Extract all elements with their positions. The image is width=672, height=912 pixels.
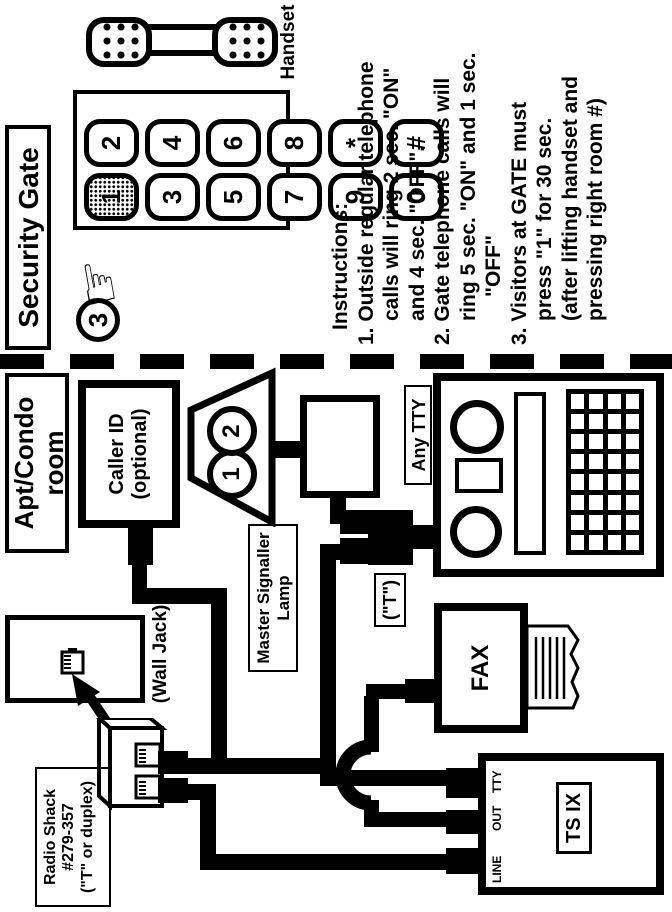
tsix-box: LINE OUT TTY TS IX: [478, 753, 664, 895]
tsix-tty-plug: [446, 768, 480, 798]
bell-circle-2: 2: [207, 406, 257, 456]
keypad-key-1: 1: [84, 173, 139, 221]
tty-display-bar: [514, 392, 546, 555]
tsix-out-plug: [446, 810, 480, 834]
any-tty-label: Any TTY: [404, 385, 432, 485]
room-section-title: Apt/Condo room: [5, 373, 69, 553]
radio-shack-line1: Radio Shack: [42, 769, 60, 905]
tsix-port-line-label: LINE: [490, 856, 504, 883]
fax-line-plug: [405, 679, 437, 703]
gate-keypad: 1 2 3 4 5 6 7 8 9 * 0 #: [73, 90, 290, 230]
keypad-key-5: 5: [206, 173, 261, 221]
tty-acoustic-cup-left: [450, 506, 502, 558]
instruction-line: and 4 sec. "OFF".: [405, 0, 431, 345]
duplex-plug-1: [158, 751, 188, 774]
instruction-line: (after lifting handset and: [558, 0, 584, 345]
instruction-line: 3. Visitors at GATE must: [507, 0, 533, 345]
fax-label: FAX: [467, 645, 495, 692]
t-adapter-label: ("T"): [374, 573, 406, 627]
handset-earpiece-top: [86, 17, 152, 67]
tsix-model-plate: TS IX: [556, 782, 592, 854]
handset-mouthpiece-holes: [227, 21, 267, 61]
room-title-line2: room: [40, 377, 70, 549]
caller-id-plug: [128, 528, 153, 565]
keypad-key-7: 7: [267, 173, 322, 221]
cable-hop-arc: [330, 727, 390, 817]
caller-id-box: Caller ID (optional): [78, 380, 180, 528]
master-signaller-line2: Lamp: [274, 526, 294, 670]
callerid-cable-h2: [211, 601, 227, 771]
tsix-line-plug: [446, 848, 480, 874]
keypad-key-6: 6: [206, 119, 261, 167]
room-title-line1: Apt/Condo: [10, 377, 40, 549]
radio-shack-line2: #279-357: [60, 769, 78, 905]
instruction-line: 1. Outside regular telephone: [354, 0, 380, 345]
instructions-heading: Instructions:: [328, 0, 354, 345]
fax-cable-v2: [364, 812, 450, 827]
keypad-key-3: 3: [145, 173, 200, 221]
pointing-hand-icon: ☞: [60, 223, 135, 313]
scanned-diagram-page: Apt/Condo room (Wall Jack) Radio Shack #…: [0, 0, 672, 912]
t-adapter-plug-right: [340, 510, 370, 534]
bell-circle-1: 1: [207, 449, 257, 499]
keypad-key-8: 8: [267, 119, 322, 167]
security-gate-title: Security Gate: [5, 125, 51, 350]
master-signaller-line1: Master Signaller: [254, 526, 274, 670]
instruction-line: ring 5 sec. "ON" and 1 sec.: [456, 0, 482, 345]
radio-shack-label: Radio Shack #279-357 ("T" or duplex): [35, 767, 111, 907]
duplex-plug-2: [158, 778, 188, 803]
keypad-key-2: 2: [84, 119, 139, 167]
master-signaller-label: Master Signaller Lamp: [248, 524, 298, 672]
caller-id-line2: (optional): [129, 388, 152, 520]
tsix-port-out-label: OUT: [490, 806, 504, 831]
section-divider-dashed-line: [0, 354, 672, 369]
t-adapter-plug-left: [340, 538, 370, 564]
caller-id-line1: Caller ID: [106, 388, 129, 520]
signaller-control-box: [300, 395, 380, 498]
tty-acoustic-cup-right: [450, 400, 504, 454]
wall-jack-label: (Wall Jack): [150, 594, 172, 714]
tsix-port-tty-label: TTY: [490, 770, 504, 793]
t-adapter-body: [368, 510, 413, 565]
fax-paper-output: [526, 621, 584, 713]
tty-small-panel: [455, 458, 503, 493]
instruction-line: calls will ring 2 sec. "ON": [379, 0, 405, 345]
handset-earpiece-top-holes: [101, 21, 141, 61]
line2-cable-v2: [200, 854, 450, 870]
instruction-line: 2. Gate telephone calls will: [430, 0, 456, 345]
handset-label: Handset: [278, 0, 300, 102]
tty-keyboard-grid: [566, 389, 644, 555]
radio-shack-line3: ("T" or duplex): [79, 769, 97, 905]
landscape-canvas: Apt/Condo room (Wall Jack) Radio Shack #…: [0, 0, 672, 912]
instruction-line: "OFF": [481, 0, 507, 345]
instruction-line: press "1" for 30 sec.: [532, 0, 558, 345]
handset-connector: [140, 24, 220, 56]
keypad-key-4: 4: [145, 119, 200, 167]
instruction-line: pressing right room #): [583, 0, 609, 345]
fax-box: FAX: [434, 603, 528, 733]
instructions-block: Instructions: 1. Outside regular telepho…: [328, 0, 609, 345]
line1-main-cable-upper: [186, 758, 336, 774]
handset-mouthpiece-bottom: [212, 17, 278, 67]
